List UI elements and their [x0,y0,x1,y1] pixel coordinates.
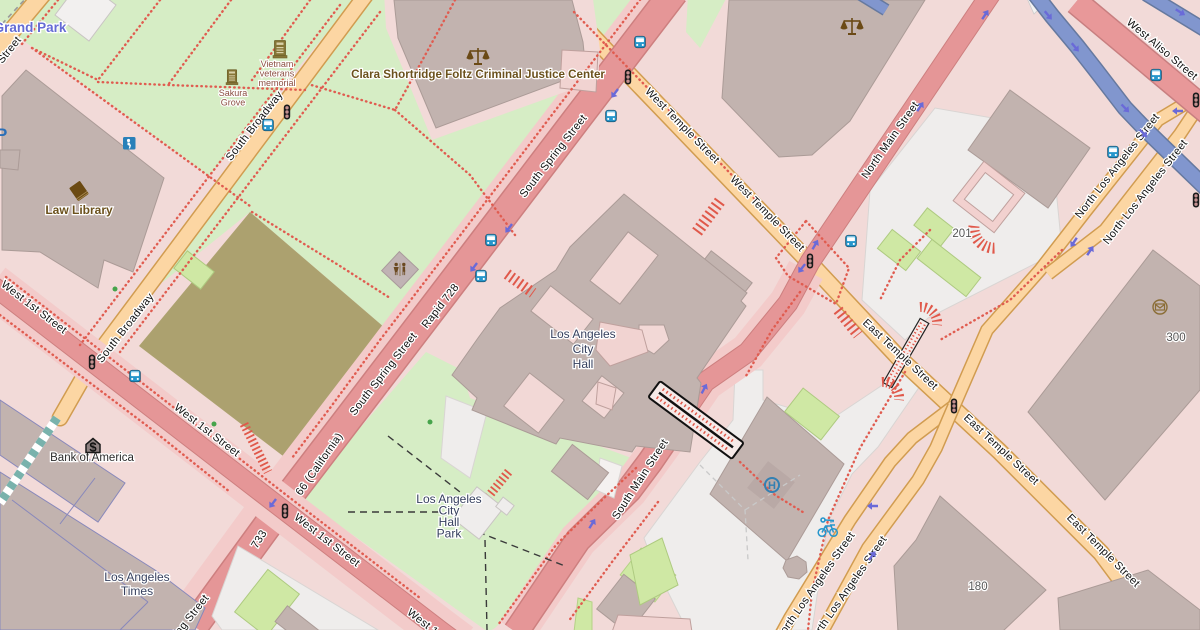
svg-text:Clara Shortridge Foltz Crimina: Clara Shortridge Foltz Criminal Justice … [351,68,605,81]
svg-text:memorial: memorial [258,78,295,88]
svg-text:Grove: Grove [221,98,246,108]
svg-text:Los Angeles: Los Angeles [550,327,615,341]
svg-text:Los Angeles: Los Angeles [104,570,169,584]
svg-text:Hall: Hall [573,357,594,371]
svg-text:300: 300 [1166,332,1185,344]
svg-text:Park: Park [437,527,463,541]
svg-text:Grand Park: Grand Park [0,20,67,35]
svg-text:$: $ [89,440,97,455]
svg-text:180: 180 [968,581,987,593]
svg-text:Times: Times [121,584,153,598]
svg-text:veterans: veterans [260,69,295,79]
svg-text:Law Library: Law Library [45,203,113,217]
svg-text:Vietnam: Vietnam [261,59,294,69]
svg-text:Sakura: Sakura [219,88,248,98]
svg-text:City: City [573,342,594,356]
svg-text:201: 201 [952,228,971,240]
svg-text:H: H [768,480,776,492]
svg-text:P: P [0,125,7,144]
